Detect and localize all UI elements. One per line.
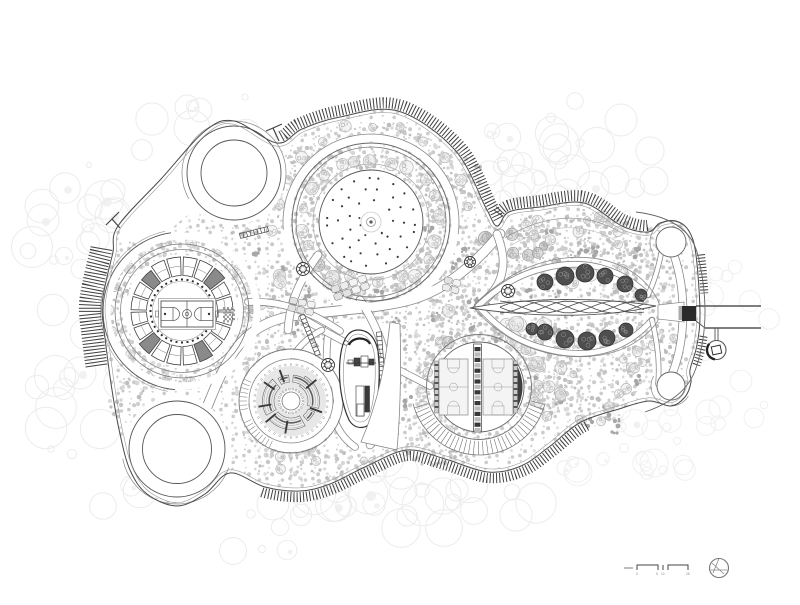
svg-text:0: 0 [636, 572, 638, 576]
svg-text:25: 25 [686, 572, 690, 576]
svg-text:5: 5 [656, 572, 658, 576]
svg-text:10: 10 [661, 572, 665, 576]
